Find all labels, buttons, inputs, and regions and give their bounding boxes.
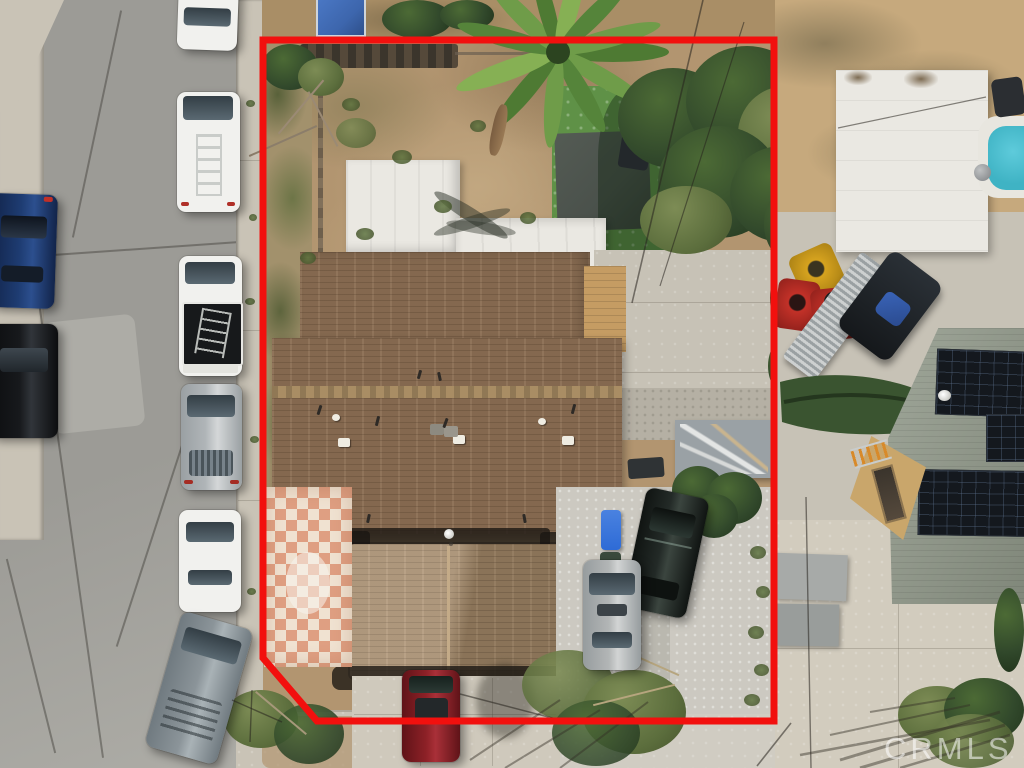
guy-wire bbox=[232, 700, 282, 722]
power-line bbox=[806, 497, 811, 768]
power-line bbox=[460, 694, 556, 719]
power-line bbox=[660, 22, 744, 286]
overlay-lines bbox=[0, 0, 1024, 768]
property-boundary-line bbox=[263, 40, 774, 721]
power-line bbox=[632, 0, 703, 303]
guy-wire bbox=[250, 690, 252, 742]
guy-wire bbox=[757, 723, 791, 766]
bush-shadow-streak bbox=[560, 702, 648, 768]
watermark: CRMLS bbox=[884, 731, 1013, 767]
power-line bbox=[838, 97, 986, 128]
tree-shadow-streak bbox=[870, 698, 955, 712]
aerial-photo: CRMLS bbox=[0, 0, 1024, 768]
